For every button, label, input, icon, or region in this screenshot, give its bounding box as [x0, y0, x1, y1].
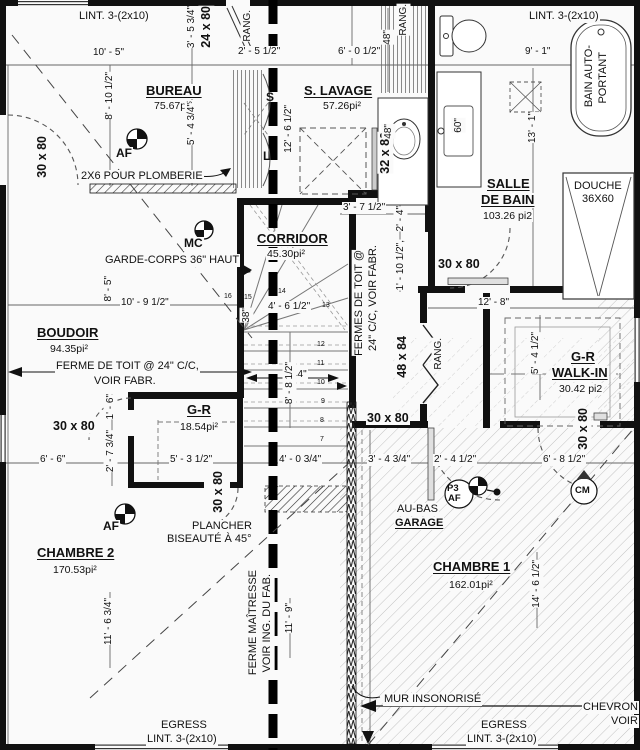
- dim-1-6: 1' - 6": [104, 394, 118, 419]
- note-egress-left-line2: LINT. 3-(2x10): [146, 733, 218, 746]
- dim-9-1: 9' - 1": [524, 46, 551, 58]
- dim-6-8-1-2: 6' - 8 1/2": [542, 454, 586, 466]
- marker-s: S: [265, 91, 275, 105]
- room-title-chambre1: CHAMBRE 1: [432, 560, 511, 575]
- note-douche-line1: DOUCHE: [573, 180, 623, 193]
- dim-8-5: 8' - 5": [102, 276, 116, 301]
- stair-number-16: 16: [224, 293, 232, 301]
- dim-3-4-3-4: 3' - 4 3/4": [367, 454, 411, 466]
- dim-1-10-1-2: 1' - 10 1/2",: [394, 240, 408, 291]
- stair-number-13: 13: [322, 302, 330, 310]
- stair-number-10: 10: [317, 379, 325, 387]
- room-title-salle-line2: DE BAIN: [480, 193, 535, 208]
- dim-12-8: 12' - 8": [477, 297, 510, 309]
- dim-3-5-3-4: 3' - 5 3/4": [185, 6, 199, 48]
- dim-5-4-1-2: 5' - 4 1/2": [529, 332, 543, 374]
- door-label-gr-bottom-30x80: 30 x 80: [210, 471, 226, 513]
- door-label-48x84: 48 x 84: [394, 336, 410, 378]
- dim-10-9-1-2: 10' - 9 1/2": [120, 297, 170, 309]
- note-bain-line1: BAIN AUTO-: [582, 45, 597, 107]
- dim-38: 38": [240, 308, 254, 323]
- room-area-chambre1: 162.01pi²: [448, 579, 494, 591]
- room-area-gr: 18.54pi²: [179, 421, 219, 433]
- room-title-walkin-line2: WALK-IN: [551, 366, 609, 381]
- marker-cm: CM: [575, 486, 590, 496]
- door-label-walkin-ch1-30x80: 30 x 80: [575, 408, 591, 450]
- dim-11-9: 11' - 9": [283, 603, 297, 633]
- room-area-salle: 103.26 pi2: [482, 210, 533, 222]
- dim-2-7-3-4: 2' - 7 3/4": [104, 430, 118, 472]
- note-egress-left-line1: EGRESS: [160, 719, 208, 732]
- room-title-corridor: CORRIDOR: [256, 232, 329, 247]
- marker-af-1: AF: [115, 147, 133, 161]
- closet-rang-label-mid: RANG.: [432, 338, 446, 370]
- dim-60: 60": [452, 118, 466, 133]
- dim-14-6-1-2: 14' - 6 1/2": [530, 560, 544, 608]
- marker-af-2: AF: [102, 520, 120, 534]
- dim-4-0-3-4: 4' - 0 3/4": [278, 454, 322, 466]
- room-title-boudoir: BOUDOIR: [36, 326, 99, 341]
- door-label-bureau-30x80: 30 x 80: [34, 136, 50, 178]
- room-area-boudoir: 94.35pi²: [49, 343, 89, 355]
- stair-number-9: 9: [321, 398, 325, 406]
- dim-12-6-1-2: 12' - 6 1/2": [282, 105, 296, 153]
- note-ferme-maitresse-line1: FERME MAÎTRESSE: [246, 570, 261, 675]
- dim-6-6: 6' - 6": [39, 454, 66, 466]
- note-fermes-toit-line2: 24" C/C, VOIR FABR.: [366, 245, 381, 351]
- dim-3-7-1-2: 3' - 7 1/2": [342, 202, 386, 214]
- note-fermes-toit-line1: FERMES DE TOIT @: [352, 250, 367, 356]
- door-label-stairwall-30x80: 30 x 80: [366, 411, 410, 425]
- marker-p3-af: AF: [448, 494, 461, 504]
- dim-4-6-1-2: 4' - 6 1/2": [267, 301, 311, 313]
- closet-rang-label-right: RANG.: [397, 4, 411, 36]
- stair-number-15: 15: [244, 294, 252, 302]
- room-area-walkin: 30.42 pi2: [558, 383, 603, 395]
- door-label-gr-left-30x80: 30 x 80: [52, 419, 96, 433]
- closet-rang-label-top: RANG.: [241, 10, 255, 42]
- marker-mc: MC: [183, 237, 204, 251]
- dim-5-3-1-2: 5' - 3 1/2": [169, 454, 213, 466]
- room-title-bureau: BUREAU: [145, 84, 203, 99]
- dim-2-4: 2' - 4": [394, 206, 408, 231]
- note-chevron-line2: VOIR: [610, 715, 639, 728]
- room-title-walkin-line1: G-R: [570, 350, 596, 365]
- note-plancher-line2: BISEAUTÉ À 45°: [166, 533, 253, 546]
- note-douche-line2: 36X60: [581, 193, 615, 206]
- dim-48-top: 48": [381, 30, 395, 45]
- room-title-chambre2: CHAMBRE 2: [36, 546, 115, 561]
- room-title-s-lavage: S. LAVAGE: [303, 84, 373, 99]
- note-plancher-line1: PLANCHER: [191, 520, 253, 533]
- dim-6-0-1-2: 6' - 0 1/2": [337, 46, 381, 58]
- note-egress-right-line1: EGRESS: [480, 719, 528, 732]
- dim-5-4-3-4: 5' - 4 3/4": [185, 103, 199, 145]
- dim-48-mid: 48": [382, 124, 396, 139]
- note-egress-right-line2: LINT. 3-(2x10): [466, 733, 538, 746]
- door-label-24x80: 24 x 80: [198, 6, 214, 48]
- note-ferme-toit-line1: FERME DE TOIT @ 24" C/C,: [55, 360, 200, 373]
- room-area-corridor: 45.30pi²: [266, 248, 306, 260]
- note-lintel-top-left: LINT. 3-(2x10): [78, 10, 150, 23]
- dim-11-6-3-4: 11' - 6 3/4": [102, 598, 116, 645]
- dim-8-10-1-2: 8' - 10 1/2": [103, 72, 117, 120]
- note-garde-corps: GARDE-CORPS 36" HAUT: [104, 254, 240, 267]
- note-garage: GARAGE: [394, 517, 444, 530]
- dim-2-5-1-2: 2' - 5 1/2": [237, 46, 281, 58]
- marker-l: L: [262, 150, 271, 164]
- stair-number-14: 14: [278, 288, 286, 296]
- note-mur-insonorise: MUR INSONORISÉ: [383, 693, 482, 706]
- dim-2-4-1-2: 2' - 4 1/2": [433, 454, 477, 466]
- stair-number-11: 11: [317, 360, 324, 368]
- stair-number-12: 12: [317, 341, 325, 349]
- note-lintel-top-right: LINT. 3-(2x10): [528, 10, 600, 23]
- note-ferme-maitresse-line2: VOIR ING. DU FAB.: [260, 574, 275, 672]
- door-label-bath-30x80: 30 x 80: [437, 257, 481, 271]
- stair-number-7: 7: [320, 436, 324, 444]
- note-chevron-line1: CHEVRON: [582, 701, 639, 714]
- room-area-chambre2: 170.53pi²: [52, 564, 98, 576]
- dim-13-1: 13' - 1": [526, 112, 540, 143]
- note-aubas: AU-BAS: [396, 503, 439, 516]
- room-area-s-lavage: 57.26pi²: [322, 100, 362, 112]
- note-2x6-plomberie: 2X6 POUR PLOMBERIE: [80, 170, 204, 183]
- note-bain-line2: PORTANT: [596, 52, 611, 104]
- note-ferme-toit-line2: VOIR FABR.: [93, 375, 157, 388]
- dim-10-5: 10' - 5": [92, 47, 125, 59]
- floor-plan: LINT. 3-(2x10) 10' - 5" 3' - 5 3/4" 24 x…: [0, 0, 640, 750]
- room-title-salle-line1: SALLE: [486, 177, 531, 192]
- dim-8-8-1-2: 8' - 8 1/2": [283, 362, 297, 404]
- stair-number-8: 8: [320, 417, 324, 425]
- room-title-gr: G-R: [186, 403, 212, 418]
